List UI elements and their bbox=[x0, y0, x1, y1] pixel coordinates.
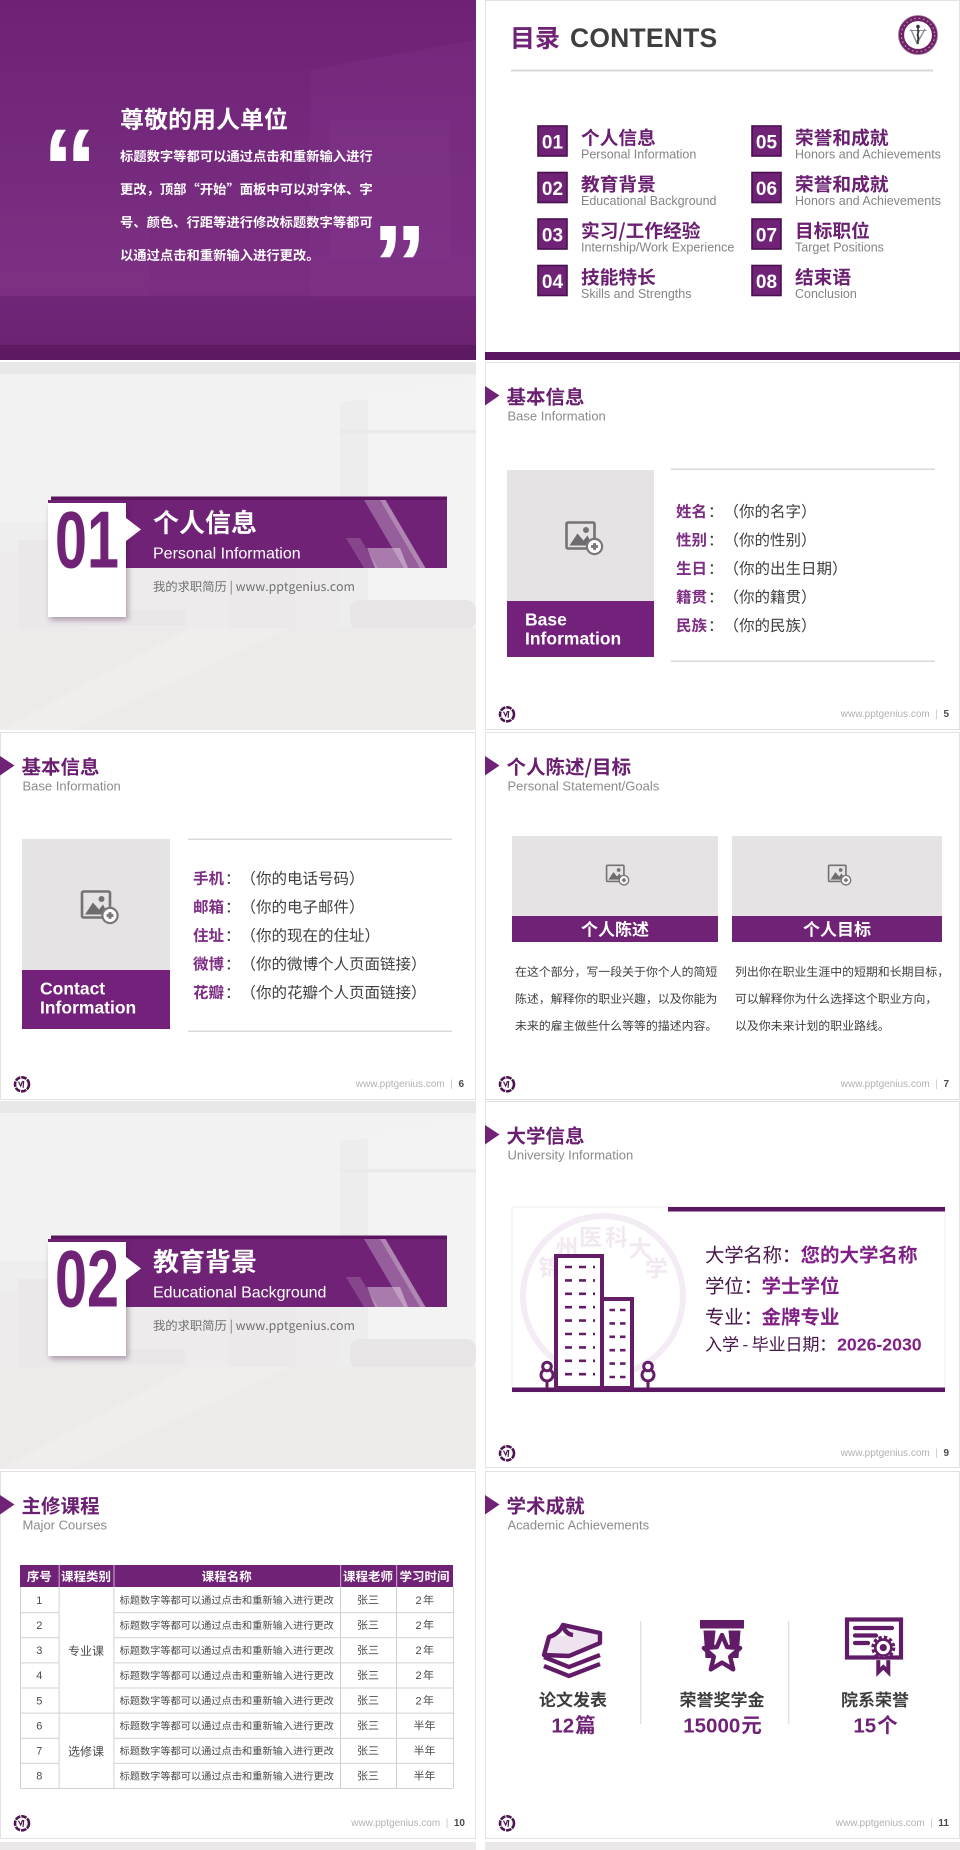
svg-text:06: 06 bbox=[756, 179, 777, 200]
svg-text:04: 04 bbox=[542, 272, 564, 293]
svg-text:Personal Statement/Goals: Personal Statement/Goals bbox=[508, 779, 660, 794]
svg-text:2: 2 bbox=[415, 1620, 421, 1632]
svg-text:01: 01 bbox=[55, 494, 119, 585]
svg-text:2026-2030: 2026-2030 bbox=[837, 1335, 922, 1355]
svg-text:Base: Base bbox=[525, 610, 567, 630]
svg-text:www.pptgenius.com | 10: www.pptgenius.com | 10 bbox=[350, 1818, 465, 1829]
svg-text:02: 02 bbox=[542, 179, 563, 200]
svg-text:Skills and Strengths: Skills and Strengths bbox=[581, 287, 691, 301]
svg-text:01: 01 bbox=[542, 133, 564, 154]
svg-text:”: ” bbox=[372, 203, 427, 326]
svg-text:5: 5 bbox=[36, 1695, 42, 1707]
svg-text:2: 2 bbox=[36, 1620, 42, 1632]
svg-text:Internship/Work Experience: Internship/Work Experience bbox=[581, 241, 734, 255]
svg-text:www.pptgenius.com | 6: www.pptgenius.com | 6 bbox=[355, 1079, 465, 1090]
svg-text:Conclusion: Conclusion bbox=[795, 287, 857, 301]
svg-text:07: 07 bbox=[756, 226, 777, 247]
svg-text:Educational Background: Educational Background bbox=[581, 194, 717, 208]
svg-text:Honors and Achievements: Honors and Achievements bbox=[795, 148, 941, 162]
svg-text:Personal Information: Personal Information bbox=[581, 148, 696, 162]
svg-text:Contact: Contact bbox=[40, 979, 105, 999]
svg-text:CONTENTS: CONTENTS bbox=[570, 23, 717, 53]
svg-text:2: 2 bbox=[415, 1595, 421, 1607]
svg-text:1: 1 bbox=[36, 1595, 42, 1607]
svg-text:www.pptgenius.com | 9: www.pptgenius.com | 9 bbox=[840, 1448, 950, 1459]
svg-text:7: 7 bbox=[36, 1746, 42, 1758]
svg-text:2: 2 bbox=[415, 1645, 421, 1657]
svg-text:Academic Achievements: Academic Achievements bbox=[508, 1518, 650, 1533]
svg-text:8: 8 bbox=[36, 1771, 42, 1783]
svg-text:Base Information: Base Information bbox=[23, 779, 121, 794]
svg-text:Information: Information bbox=[525, 629, 621, 649]
svg-text:www.pptgenius.com | 5: www.pptgenius.com | 5 bbox=[840, 709, 950, 720]
svg-text:“: “ bbox=[42, 107, 97, 230]
svg-text:www.pptgenius.com | 7: www.pptgenius.com | 7 bbox=[840, 1079, 950, 1090]
svg-text:Honors and Achievements: Honors and Achievements bbox=[795, 194, 941, 208]
svg-text:www.pptgenius.com | 11: www.pptgenius.com | 11 bbox=[835, 1818, 950, 1829]
svg-text:Educational Background: Educational Background bbox=[153, 1285, 326, 1302]
svg-text:05: 05 bbox=[756, 133, 778, 154]
svg-text:6: 6 bbox=[36, 1720, 42, 1732]
svg-text:15: 15 bbox=[853, 1715, 876, 1738]
svg-text:3: 3 bbox=[36, 1645, 42, 1657]
svg-text:Personal Information: Personal Information bbox=[153, 546, 301, 563]
svg-text:03: 03 bbox=[542, 226, 563, 247]
svg-text:Base Information: Base Information bbox=[508, 409, 606, 424]
svg-text:2: 2 bbox=[415, 1670, 421, 1682]
svg-text:University Information: University Information bbox=[508, 1148, 634, 1163]
svg-text:Target Positions: Target Positions bbox=[795, 241, 884, 255]
svg-text:12: 12 bbox=[551, 1715, 574, 1738]
svg-text:15000: 15000 bbox=[683, 1715, 740, 1738]
svg-text:4: 4 bbox=[36, 1670, 42, 1682]
svg-text:2: 2 bbox=[415, 1695, 421, 1707]
svg-text:02: 02 bbox=[55, 1233, 119, 1324]
svg-text:Information: Information bbox=[40, 998, 136, 1018]
svg-text:08: 08 bbox=[756, 272, 777, 293]
svg-text:Major Courses: Major Courses bbox=[23, 1518, 108, 1533]
